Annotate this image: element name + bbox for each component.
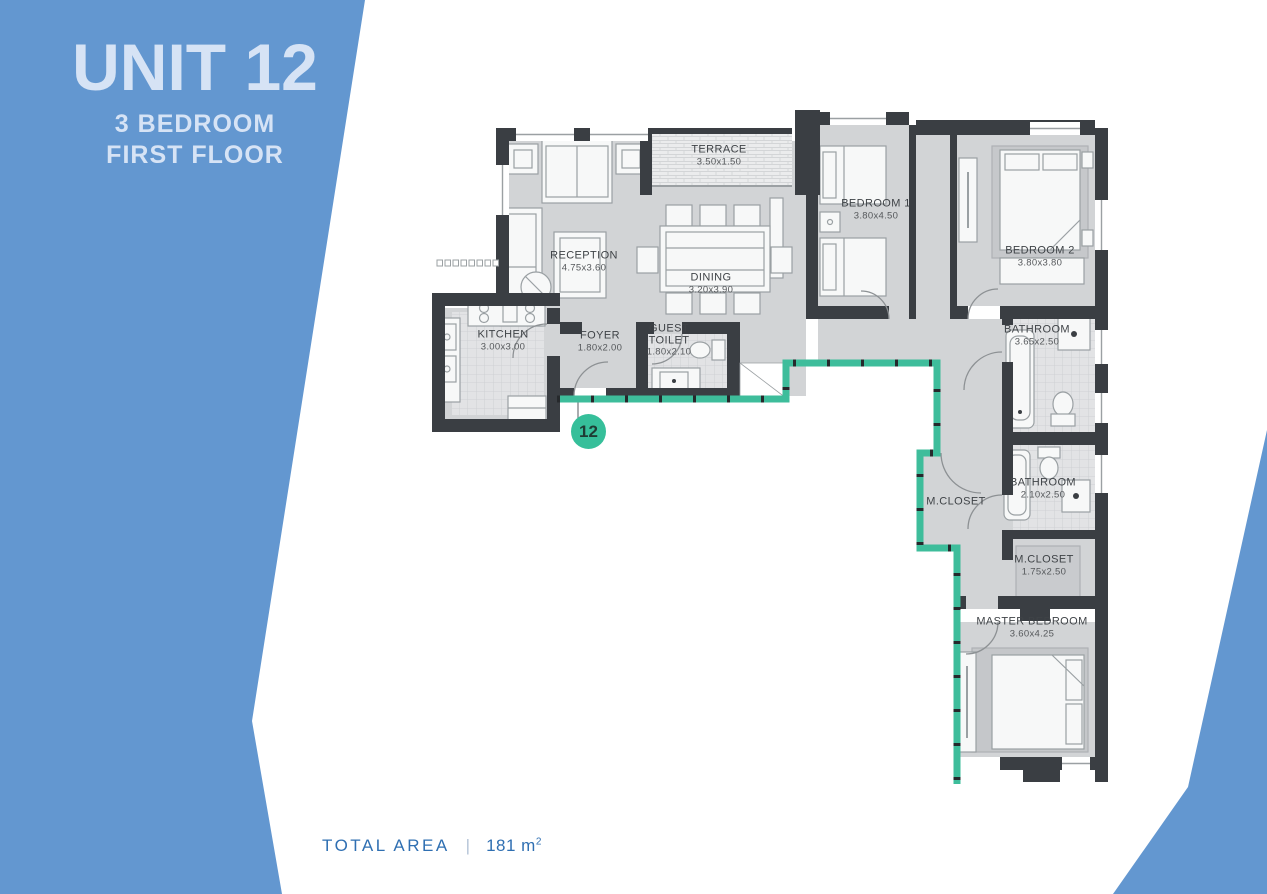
bedroom2-bed <box>992 146 1093 284</box>
unit-title-block: UNIT 12 3 BEDROOM FIRST FLOOR <box>25 34 365 171</box>
page: UNIT 12 3 BEDROOM FIRST FLOOR TERRACE3.5… <box>0 0 1267 894</box>
total-area-label: TOTAL AREA <box>322 836 450 856</box>
unit-subtitle-floor: FIRST FLOOR <box>25 140 365 171</box>
closet-unit <box>1016 546 1080 602</box>
balcony-edge <box>557 363 957 784</box>
unit-subtitle-bedrooms: 3 BEDROOM <box>25 109 365 140</box>
total-area-value: 181 m2 <box>486 836 542 856</box>
blue-band-right <box>1113 430 1267 894</box>
master-bed <box>958 648 1088 752</box>
terrace-paving <box>652 134 792 187</box>
total-area-row: TOTAL AREA | 181 m2 <box>322 836 542 856</box>
total-area-separator: | <box>466 836 470 856</box>
unit-title: UNIT 12 <box>25 34 365 100</box>
unit-number-badge: 12 <box>571 414 606 449</box>
vent-row <box>437 260 499 266</box>
dresser <box>1000 258 1084 284</box>
